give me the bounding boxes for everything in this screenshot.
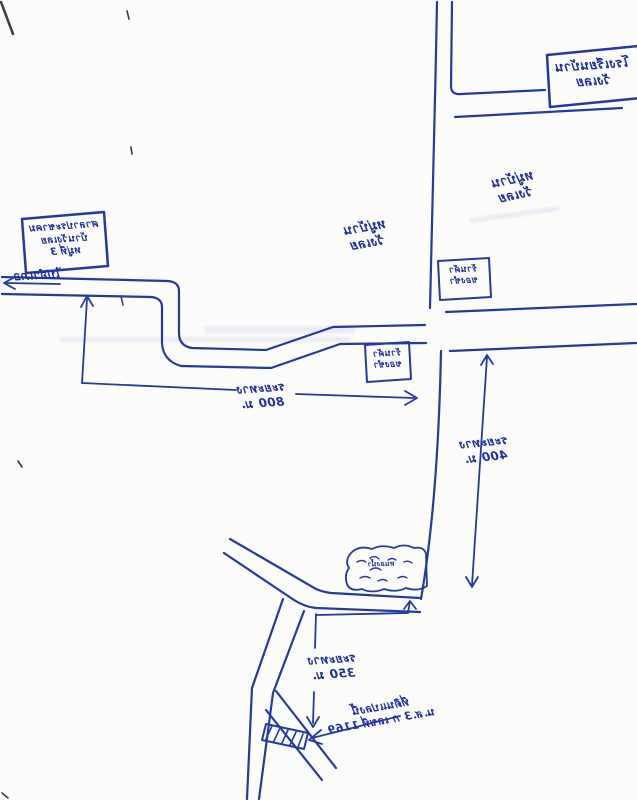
scan-speck xyxy=(131,147,132,154)
distance-400-label: ระยะทาง 400 ม. xyxy=(455,432,516,468)
road-east-lower-edge xyxy=(450,343,636,351)
road-west-text: ไปอำเภอ xyxy=(14,267,63,284)
shop-box-lower-label: ร้านค้า ของชำ xyxy=(367,348,408,373)
measure-350-horizontal xyxy=(317,613,407,615)
scan-edge-mark xyxy=(1,2,13,34)
shop-box-upper-label: ร้านค้า ของชำ xyxy=(440,264,487,289)
road-south-right-edge xyxy=(259,611,304,799)
scanned-sketch-map: โรงเรียนบ้าน วังเลย หมู่บ้าน วังเลย หมู่… xyxy=(0,0,637,800)
shop-lower-line1: ร้านค้า xyxy=(373,348,402,359)
road-west-lower-edge xyxy=(2,294,426,368)
distance-350-label: ระยะทาง 350 ม. xyxy=(300,650,366,684)
road-south-left-edge xyxy=(247,599,283,799)
pond-text: หนองน้ำ xyxy=(368,560,396,569)
pond-label: หนองน้ำ xyxy=(368,560,396,570)
road-vertical-top-right-edge xyxy=(451,2,545,94)
road-east-upper-edge xyxy=(446,304,636,312)
shop-lower-line2: ของชำ xyxy=(368,359,409,372)
school-box-label: โรงเรียนบ้าน วังเลย xyxy=(552,55,636,93)
road-vertical-top-left-edge xyxy=(430,2,437,308)
scan-speck xyxy=(18,461,22,467)
scan-speck xyxy=(127,11,129,19)
road-to-school-lower-edge xyxy=(455,108,622,117)
road-west-label: ไปอำเภอ xyxy=(14,267,63,285)
left-box-label: ศาลาประชาคม บ้านวังเลย หมู่ที่ 3 xyxy=(25,218,105,261)
road-west-upper-edge xyxy=(2,277,425,350)
distance-800-label: ระยะทาง 800 ม. xyxy=(223,378,301,413)
road-vertical-lower xyxy=(421,351,441,599)
measure-800-vertical xyxy=(82,299,87,383)
shop-upper-line2: ของชำ xyxy=(441,275,488,289)
measure-800-horizontal-right xyxy=(296,394,414,398)
shop-upper-line1: ร้านค้า xyxy=(449,264,478,275)
measure-800-horizontal-left xyxy=(82,383,236,390)
measure-400-vertical xyxy=(472,357,487,585)
scan-speck xyxy=(2,793,8,798)
